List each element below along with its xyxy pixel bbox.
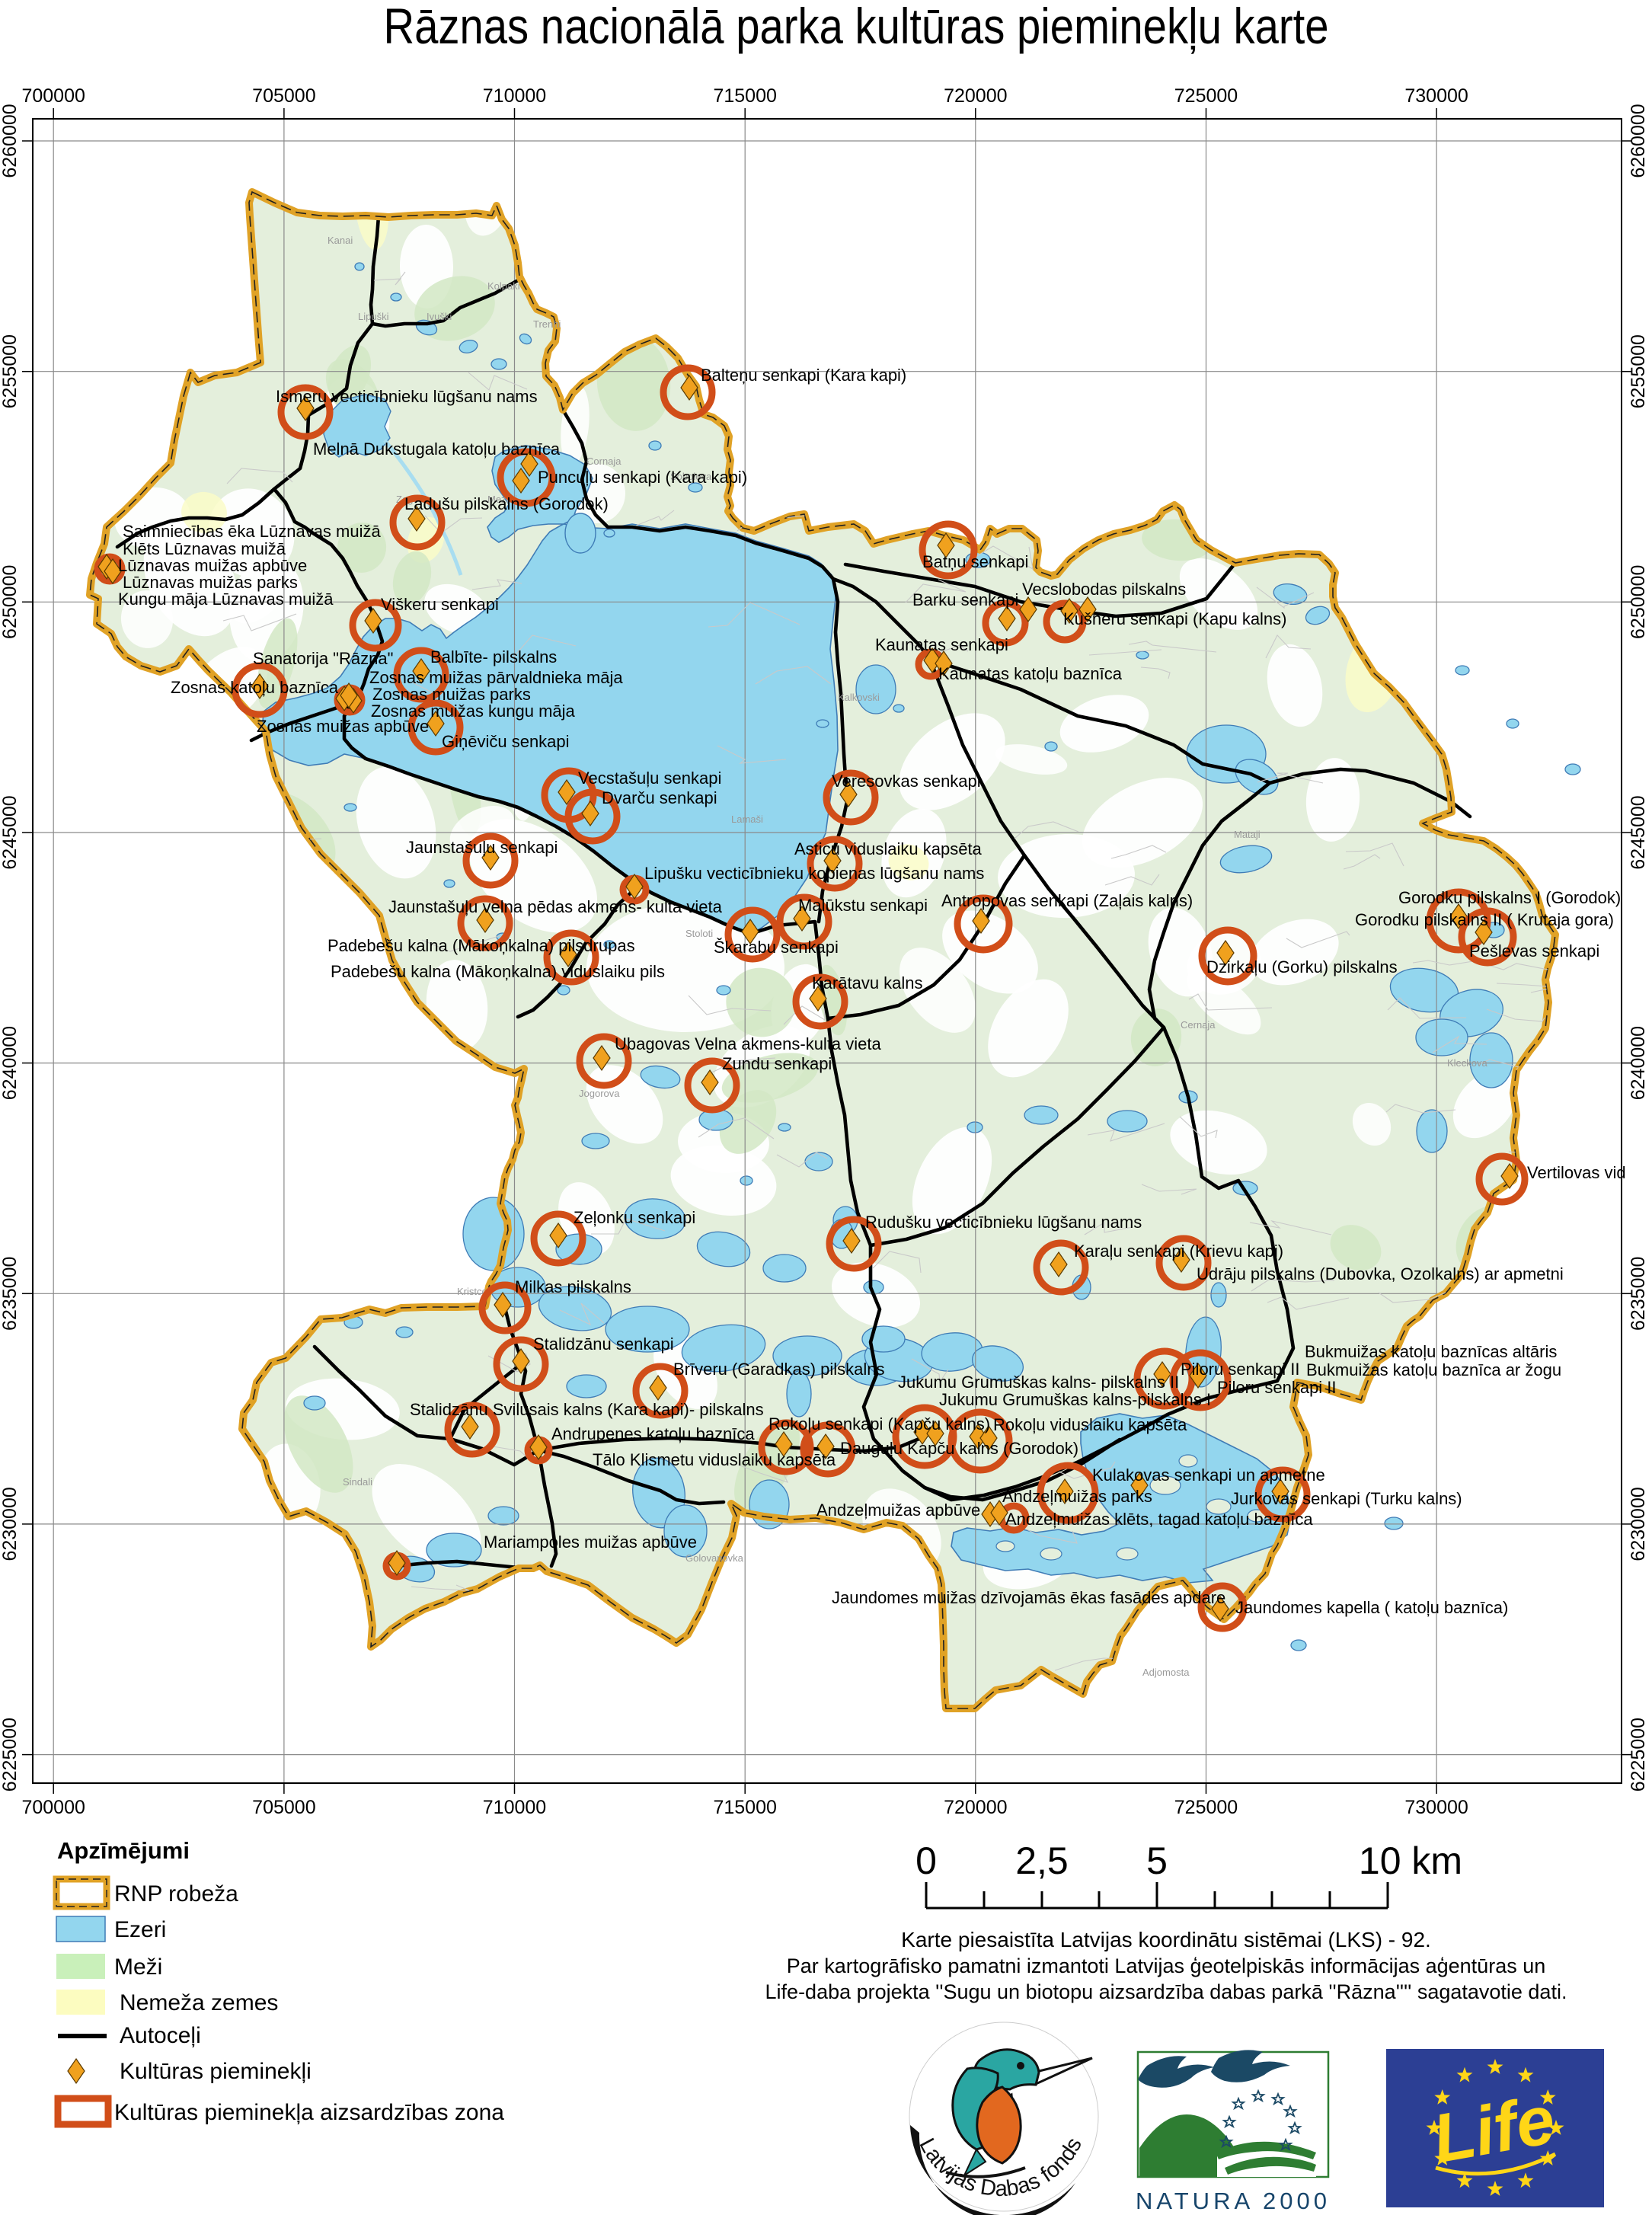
svg-text:Malūkstu senkapi: Malūkstu senkapi — [798, 896, 928, 915]
svg-text:Rokoļu senkapi (Kapču kalns): Rokoļu senkapi (Kapču kalns) — [768, 1414, 990, 1434]
svg-text:6250000: 6250000 — [0, 565, 21, 639]
svg-text:Balbīte- pilskalns: Balbīte- pilskalns — [430, 647, 557, 666]
svg-text:10 km: 10 km — [1359, 1839, 1462, 1882]
svg-text:Jukumu Grumuškas kalns-pilskal: Jukumu Grumuškas kalns-pilskalns I — [939, 1390, 1211, 1409]
svg-text:Mariampoles muižas apbūve: Mariampoles muižas apbūve — [484, 1533, 697, 1552]
svg-text:Ladušu pilskalns (Gorodok): Ladušu pilskalns (Gorodok) — [404, 494, 609, 513]
svg-text:6260000: 6260000 — [1628, 104, 1649, 177]
svg-text:705000: 705000 — [252, 85, 315, 107]
svg-text:Dzirkaļu (Gorku) pilskalns: Dzirkaļu (Gorku) pilskalns — [1206, 957, 1398, 976]
svg-text:Adjomosta: Adjomosta — [1142, 1667, 1190, 1678]
svg-text:Ismeru vecticībnieku lūgšanu n: Ismeru vecticībnieku lūgšanu nams — [276, 387, 538, 406]
svg-text:Dvarču senkapi: Dvarču senkapi — [602, 788, 717, 807]
svg-text:Vecslobodas pilskalns: Vecslobodas pilskalns — [1022, 580, 1186, 599]
svg-text:Mataji: Mataji — [1234, 829, 1261, 840]
svg-text:Saimniecības ēka Lūznavas muiž: Saimniecības ēka Lūznavas muižā — [123, 522, 381, 541]
svg-text:Zeļonku senkapi: Zeļonku senkapi — [574, 1208, 695, 1227]
svg-text:6240000: 6240000 — [0, 1026, 21, 1100]
svg-text:700000: 700000 — [21, 1797, 85, 1818]
svg-text:Nemeža zemes: Nemeža zemes — [120, 1990, 278, 2015]
svg-text:Jaundomes muižas dzīvojamās ēk: Jaundomes muižas dzīvojamās ēkas fasādes… — [832, 1588, 1225, 1607]
svg-text:Gorodku pilskalns I (Gorodok): Gorodku pilskalns I (Gorodok) — [1398, 888, 1621, 907]
svg-text:Brīveru (Garadkas) pilskalns: Brīveru (Garadkas) pilskalns — [673, 1360, 885, 1379]
svg-text:705000: 705000 — [252, 1797, 315, 1818]
svg-text:730000: 730000 — [1404, 85, 1468, 107]
svg-text:Padebešu kalna (Mākoņkalna) pi: Padebešu kalna (Mākoņkalna) pilsdrupas — [328, 936, 635, 955]
svg-text:Par kartogrāfisko pamatni izma: Par kartogrāfisko pamatni izmantoti Latv… — [787, 1955, 1546, 1977]
svg-text:Gorodku pilskalns II ( Krutaja: Gorodku pilskalns II ( Krutaja gora) — [1355, 910, 1614, 929]
svg-text:Rāznas nacionālā parka kultūra: Rāznas nacionālā parka kultūras pieminek… — [384, 0, 1329, 54]
svg-text:Kaunatas senkapi: Kaunatas senkapi — [875, 635, 1008, 654]
svg-text:6230000: 6230000 — [0, 1487, 21, 1561]
svg-text:Bukmuižas katoļu baznīcas altā: Bukmuižas katoļu baznīcas altāris — [1305, 1342, 1557, 1361]
svg-text:5: 5 — [1146, 1839, 1168, 1882]
svg-text:725000: 725000 — [1174, 85, 1238, 107]
svg-text:Kungu māja Lūznavas muižā: Kungu māja Lūznavas muižā — [118, 590, 334, 609]
svg-text:Asticu viduslaiku kapsēta: Asticu viduslaiku kapsēta — [794, 839, 983, 858]
svg-text:720000: 720000 — [944, 85, 1007, 107]
svg-text:Barku senkapi: Barku senkapi — [912, 590, 1018, 609]
svg-text:Rokoļu viduslaiku kapsēta: Rokoļu viduslaiku kapsēta — [993, 1415, 1187, 1434]
svg-text:Jogorova: Jogorova — [579, 1088, 620, 1099]
svg-text:Vertilovas vid: Vertilovas vid — [1527, 1163, 1626, 1182]
svg-text:6225000: 6225000 — [1628, 1718, 1649, 1791]
svg-text:Lipušku vecticībnieku kopienas: Lipušku vecticībnieku kopienas lūgšanu n… — [644, 864, 984, 883]
svg-text:Melnā Dukstugala katoļu baznīc: Melnā Dukstugala katoļu baznīca — [313, 439, 561, 459]
svg-text:715000: 715000 — [713, 85, 776, 107]
svg-text:NATURA 2000: NATURA 2000 — [1136, 2188, 1331, 2214]
svg-text:720000: 720000 — [944, 1797, 1007, 1818]
svg-text:6225000: 6225000 — [0, 1718, 21, 1791]
svg-text:Dauguļu Kapču kalns (Gorodok): Dauguļu Kapču kalns (Gorodok) — [840, 1439, 1078, 1458]
svg-text:Karātavu kalns: Karātavu kalns — [812, 973, 923, 992]
svg-text:Pešlevas senkapi: Pešlevas senkapi — [1469, 941, 1599, 960]
svg-text:710000: 710000 — [483, 85, 546, 107]
svg-text:Batņu senkapi: Batņu senkapi — [922, 552, 1028, 571]
svg-text:Jurkovas senkapi (Turku kalns): Jurkovas senkapi (Turku kalns) — [1231, 1489, 1462, 1508]
svg-text:Stalidzānu senkapi: Stalidzānu senkapi — [533, 1334, 674, 1354]
svg-text:Zosnas katoļu baznīca: Zosnas katoļu baznīca — [171, 678, 339, 697]
svg-text:6235000: 6235000 — [0, 1257, 21, 1331]
svg-text:Autoceļi: Autoceļi — [120, 2023, 201, 2048]
svg-text:Stalidzānu Svilusais kalns (Ka: Stalidzānu Svilusais kalns (Kara kapi)- … — [410, 1400, 764, 1419]
svg-text:6250000: 6250000 — [1628, 565, 1649, 639]
svg-text:715000: 715000 — [713, 1797, 776, 1818]
svg-text:Meži: Meži — [114, 1955, 162, 1980]
svg-text:Kultūras pieminekļa aizsardzīb: Kultūras pieminekļa aizsardzības zona — [114, 2100, 504, 2125]
svg-text:Jaunstašuļu senkapi: Jaunstašuļu senkapi — [406, 838, 558, 857]
svg-text:Lamaši: Lamaši — [731, 813, 763, 825]
svg-text:6260000: 6260000 — [0, 104, 21, 177]
svg-text:6235000: 6235000 — [1628, 1257, 1649, 1331]
svg-text:Piloru senkapi II: Piloru senkapi II — [1217, 1378, 1337, 1397]
svg-text:Milkas pilskalns: Milkas pilskalns — [515, 1277, 631, 1296]
svg-text:Karte piesaistīta Latvijas koo: Karte piesaistīta Latvijas koordinātu si… — [901, 1928, 1431, 1951]
svg-text:6255000: 6255000 — [0, 334, 21, 408]
svg-text:Kanai: Kanai — [328, 235, 353, 246]
svg-text:Zundu senkapi: Zundu senkapi — [722, 1054, 832, 1073]
svg-text:Kleckova: Kleckova — [1447, 1057, 1488, 1069]
svg-text:6245000: 6245000 — [1628, 795, 1649, 869]
svg-text:Apzīmējumi: Apzīmējumi — [57, 1837, 190, 1864]
svg-text:Cernaja: Cernaja — [1181, 1019, 1216, 1031]
svg-text:Ivuški: Ivuški — [427, 311, 452, 322]
svg-text:RNP robeža: RNP robeža — [114, 1881, 238, 1907]
svg-text:Jaunstašuļu velna pēdas akmens: Jaunstašuļu velna pēdas akmens- kulta vi… — [388, 897, 723, 916]
svg-text:730000: 730000 — [1404, 1797, 1468, 1818]
svg-text:Andzeļmuižas klēts, tagad kato: Andzeļmuižas klēts, tagad katoļu baznīca — [1005, 1510, 1313, 1529]
svg-text:Piloru senkapi II: Piloru senkapi II — [1181, 1360, 1300, 1379]
svg-text:Ubagovas Velna akmens-kulta vi: Ubagovas Velna akmens-kulta vieta — [615, 1034, 882, 1053]
svg-text:Škarabu senkapi: Škarabu senkapi — [714, 938, 839, 957]
svg-text:Kaunatas katoļu baznīca: Kaunatas katoļu baznīca — [938, 664, 1123, 683]
svg-text:Kolpaki: Kolpaki — [487, 280, 520, 292]
svg-text:6245000: 6245000 — [0, 795, 21, 869]
svg-text:Jukumu Grumuškas kalns- pilska: Jukumu Grumuškas kalns- pilskalns II — [898, 1373, 1179, 1392]
svg-text:Sindali: Sindali — [343, 1476, 372, 1488]
svg-text:Kalkovski: Kalkovski — [838, 692, 880, 703]
svg-text:6230000: 6230000 — [1628, 1487, 1649, 1561]
svg-text:0: 0 — [915, 1839, 937, 1882]
svg-text:710000: 710000 — [483, 1797, 546, 1818]
svg-text:Kušneru senkapi (Kapu kalns): Kušneru senkapi (Kapu kalns) — [1063, 609, 1287, 628]
svg-text:Padebešu kalna (Mākoņkalna) vi: Padebešu kalna (Mākoņkalna) viduslaiku p… — [331, 962, 665, 981]
svg-text:Zosnas muižas apbūve: Zosnas muižas apbūve — [257, 717, 429, 736]
svg-text:Cornaja: Cornaja — [586, 455, 621, 467]
svg-text:Andzeļmuižas parks: Andzeļmuižas parks — [1002, 1487, 1152, 1506]
svg-text:Rudušku vecticībnieku lūgšanu: Rudušku vecticībnieku lūgšanu nams — [865, 1213, 1142, 1232]
svg-text:6255000: 6255000 — [1628, 334, 1649, 408]
svg-text:Giņēviču senkapi: Giņēviču senkapi — [442, 732, 570, 751]
svg-text:Kultūras pieminekļi: Kultūras pieminekļi — [120, 2059, 312, 2084]
svg-text:6240000: 6240000 — [1628, 1026, 1649, 1100]
svg-text:Balteņu senkapi (Kara kapi): Balteņu senkapi (Kara kapi) — [701, 366, 906, 385]
svg-text:700000: 700000 — [21, 85, 85, 107]
svg-text:Vecstašuļu senkapi: Vecstašuļu senkapi — [578, 769, 721, 788]
svg-text:Puncuļu senkapi (Kara kapi): Puncuļu senkapi (Kara kapi) — [538, 468, 747, 487]
svg-text:Stoloti: Stoloti — [685, 928, 713, 939]
svg-text:Trenhi: Trenhi — [533, 318, 561, 330]
svg-text:Sanatorija "Rāzna": Sanatorija "Rāzna" — [253, 649, 393, 668]
svg-text:Tālo Klismetu viduslaiku kapsē: Tālo Klismetu viduslaiku kapsēta — [593, 1450, 836, 1469]
svg-text:Antropovas senkapi (Zaļais kal: Antropovas senkapi (Zaļais kalns) — [941, 891, 1193, 910]
svg-text:Karaļu senkapi (Krievu kapi): Karaļu senkapi (Krievu kapi) — [1074, 1242, 1283, 1261]
svg-text:2,5: 2,5 — [1015, 1839, 1069, 1882]
svg-text:Golovanovka: Golovanovka — [685, 1552, 744, 1564]
svg-text:Jaundomes kapella ( katoļu baz: Jaundomes kapella ( katoļu baznīca) — [1235, 1598, 1508, 1617]
svg-text:Ezeri: Ezeri — [114, 1917, 166, 1942]
svg-text:Lipuški: Lipuški — [358, 311, 389, 322]
svg-text:Bukmuižas katoļu baznīca ar žo: Bukmuižas katoļu baznīca ar žogu — [1306, 1360, 1561, 1379]
svg-text:Veresovkas senkapi: Veresovkas senkapi — [832, 772, 981, 791]
svg-text:Andzeļmuižas apbūve: Andzeļmuižas apbūve — [816, 1501, 980, 1520]
svg-text:Life-daba projekta ''Sugu un b: Life-daba projekta ''Sugu un biotopu aiz… — [765, 1980, 1567, 2003]
svg-text:Viškeru senkapi: Viškeru senkapi — [381, 595, 499, 614]
svg-text:Kulakovas senkapi un apmetne: Kulakovas senkapi un apmetne — [1092, 1465, 1325, 1485]
svg-text:725000: 725000 — [1174, 1797, 1238, 1818]
svg-text:Udrāju pilskalns (Dubovka, Ozo: Udrāju pilskalns (Dubovka, Ozolkalns) ar… — [1197, 1264, 1564, 1283]
svg-text:Andrupenes katoļu baznīca: Andrupenes katoļu baznīca — [551, 1424, 755, 1443]
